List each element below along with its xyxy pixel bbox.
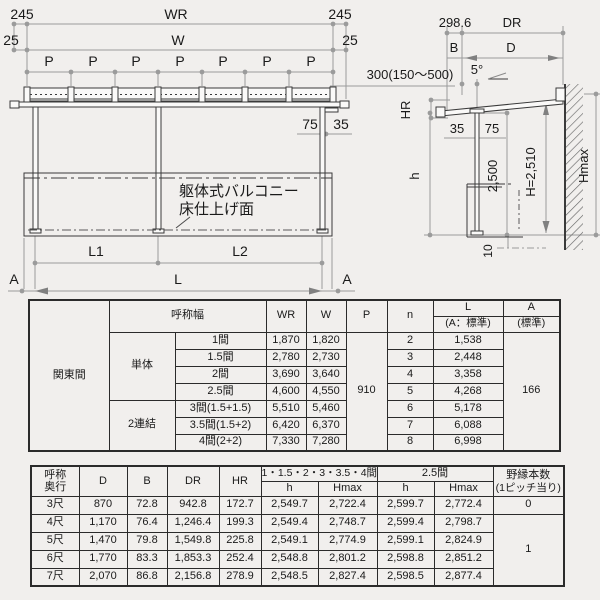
dim-label-b: B	[450, 40, 459, 55]
l-cell: 6,088	[433, 417, 503, 434]
post-bracket-right	[325, 108, 338, 112]
b-cell: 76.4	[127, 514, 167, 532]
n-header: n	[387, 300, 433, 332]
size-cell: 2.5間	[175, 383, 266, 400]
nobuchi-header-line1: 野縁本数	[494, 469, 564, 482]
n-cell: 5	[387, 383, 433, 400]
balcony-note-line2: 床仕上げ面	[179, 201, 254, 218]
h1-cell: 2,548.5	[261, 568, 318, 586]
hmax1-cell: 2,801.2	[318, 550, 377, 568]
post-center	[156, 107, 161, 232]
dim-label-slope: 5°	[471, 62, 483, 77]
post-right	[320, 107, 325, 232]
roof-front-cap	[436, 107, 445, 117]
w-cell: 2,730	[306, 349, 346, 366]
hr-cell: 172.7	[219, 496, 261, 514]
note-leader-line	[176, 217, 190, 228]
nobuchi-merged-cell: 1	[493, 514, 564, 586]
beam-cap-left	[10, 101, 19, 108]
dim-label-245-right: 245	[328, 6, 352, 22]
section-label-a-right: A	[342, 271, 352, 287]
post-side	[475, 112, 479, 233]
table-row: 5尺 1,470 79.8 1,549.8 225.8 2,549.1 2,77…	[31, 532, 564, 550]
hmax2-cell: 2,824.9	[434, 532, 493, 550]
nobuchi-header-line2: (1ピッチ当り)	[494, 482, 564, 494]
wall-bracket	[556, 88, 565, 101]
d-cell: 870	[79, 496, 127, 514]
h1-cell: 2,548.8	[261, 550, 318, 568]
depth-cell: 5尺	[31, 532, 79, 550]
hmax1-header: Hmax	[318, 481, 377, 496]
balcony-note-line1: 躯体式バルコニー	[179, 183, 299, 200]
wr-header: WR	[266, 300, 306, 332]
hmax2-header: Hmax	[434, 481, 493, 496]
table-row: 6尺 1,770 83.3 1,853.3 252.4 2,548.8 2,80…	[31, 550, 564, 568]
section-label-a-left: A	[9, 271, 19, 287]
dim-label-d: D	[506, 40, 515, 55]
wr-cell: 5,510	[266, 400, 306, 417]
dr-cell: 1,853.3	[167, 550, 219, 568]
dim-label-75-side: 75	[485, 121, 499, 136]
side-structure	[436, 84, 583, 250]
l-header: L	[433, 300, 503, 316]
h2-cell: 2,598.5	[377, 568, 434, 586]
front-view: 245 WR 245 25 W 25 P P P P P P P 75 35 躯…	[3, 6, 358, 295]
table-row: 単体 1間 1,870 1,820 910 2 1,538 166	[29, 332, 560, 349]
depth-cell: 7尺	[31, 568, 79, 586]
dim-label-2500: 2,500	[485, 160, 500, 193]
roof-mullion	[112, 87, 118, 104]
hmax1-cell: 2,827.4	[318, 568, 377, 586]
technical-drawing: 245 WR 245 25 W 25 P P P P P P P 75 35 躯…	[0, 0, 600, 298]
h2-cell: 2,599.4	[377, 514, 434, 532]
hmax2-cell: 2,851.2	[434, 550, 493, 568]
group-single-cell: 単体	[109, 332, 175, 400]
hmax2-cell: 2,877.4	[434, 568, 493, 586]
hmax2-cell: 2,798.7	[434, 514, 493, 532]
h2-cell: 2,599.7	[377, 496, 434, 514]
size-cell: 2間	[175, 366, 266, 383]
dim-label-w: W	[171, 32, 185, 48]
dim-label-pitch: P	[218, 53, 227, 69]
n-cell: 7	[387, 417, 433, 434]
size-cell: 1間	[175, 332, 266, 349]
size-cell: 3.5間(1.5+2)	[175, 417, 266, 434]
post-foot-side	[471, 231, 483, 235]
dim-label-298-6: 298.6	[439, 15, 472, 30]
wr-cell: 3,690	[266, 366, 306, 383]
h2-header: h	[377, 481, 434, 496]
a-value-cell: 166	[503, 332, 560, 451]
size-cell: 4間(2+2)	[175, 434, 266, 451]
dim-label-pitch: P	[131, 53, 140, 69]
hr-cell: 225.8	[219, 532, 261, 550]
l-cell: 2,448	[433, 349, 503, 366]
post-left	[33, 107, 38, 232]
w-cell: 6,370	[306, 417, 346, 434]
l-cell: 1,538	[433, 332, 503, 349]
wr-cell: 7,330	[266, 434, 306, 451]
w-cell: 1,820	[306, 332, 346, 349]
n-cell: 6	[387, 400, 433, 417]
h1-cell: 2,549.4	[261, 514, 318, 532]
post-bracket-side	[470, 109, 484, 113]
l-sub-header: (A：標準)	[433, 316, 503, 332]
dim-label-l1: L1	[88, 243, 104, 259]
p-value-cell: 910	[346, 332, 387, 451]
h2-cell: 2,599.1	[377, 532, 434, 550]
depth-header: 呼称 奥行	[31, 466, 79, 496]
b-cell: 79.8	[127, 532, 167, 550]
nobuchi-header: 野縁本数 (1ピッチ当り)	[493, 466, 564, 496]
a-header: A	[503, 300, 560, 316]
size-cell: 3間(1.5+1.5)	[175, 400, 266, 417]
dim-label-10: 10	[481, 244, 495, 258]
table-row: 4尺 1,170 76.4 1,246.4 199.3 2,549.4 2,74…	[31, 514, 564, 532]
roof-mullion	[286, 87, 292, 104]
l-cell: 3,358	[433, 366, 503, 383]
dim-label-l2: L2	[232, 243, 248, 259]
n-cell: 2	[387, 332, 433, 349]
dr-cell: 942.8	[167, 496, 219, 514]
dim-label-pitch: P	[44, 53, 53, 69]
dim-label-dr: DR	[503, 15, 522, 30]
dim-label-h: h	[407, 172, 422, 179]
dim-label-35: 35	[333, 116, 349, 132]
depth-cell: 6尺	[31, 550, 79, 568]
depth-table: 呼称 奥行 D B DR HR 1・1.5・2・3・3.5・4間 2.5間 野縁…	[30, 465, 565, 587]
hmax2-cell: 2,772.4	[434, 496, 493, 514]
size-cell: 1.5間	[175, 349, 266, 366]
hr-header: HR	[219, 466, 261, 496]
n-cell: 8	[387, 434, 433, 451]
depth-cell: 4尺	[31, 514, 79, 532]
dr-cell: 1,549.8	[167, 532, 219, 550]
roof-mullion	[242, 87, 248, 104]
w-cell: 5,460	[306, 400, 346, 417]
l-cell: 5,178	[433, 400, 503, 417]
dim-label-l: L	[174, 271, 182, 287]
beam-cap-right	[340, 101, 349, 108]
h1-cell: 2,549.7	[261, 496, 318, 514]
dim-label-h2510: H=2,510	[523, 147, 538, 197]
dim-label-35-side: 35	[450, 121, 464, 136]
dim-label-245-left: 245	[10, 6, 34, 22]
a-sub-header: (標準)	[503, 316, 560, 332]
wr-cell: 2,780	[266, 349, 306, 366]
d-cell: 1,470	[79, 532, 127, 550]
w-cell: 7,280	[306, 434, 346, 451]
group1-header: 1・1.5・2・3・3.5・4間	[261, 466, 377, 481]
dim-label-25-right: 25	[342, 32, 358, 48]
hmax1-cell: 2,722.4	[318, 496, 377, 514]
hr-cell: 199.3	[219, 514, 261, 532]
dim-label-pitch: P	[175, 53, 184, 69]
roof-mullion	[199, 87, 205, 104]
table-row: 7尺 2,070 86.8 2,156.8 278.9 2,548.5 2,82…	[31, 568, 564, 586]
l-cell: 4,268	[433, 383, 503, 400]
roof-mullion	[155, 87, 161, 104]
roof-end-cap-left	[24, 87, 30, 104]
group-double-cell: 2連結	[109, 400, 175, 451]
b-header: B	[127, 466, 167, 496]
l-cell: 6,998	[433, 434, 503, 451]
wr-cell: 6,420	[266, 417, 306, 434]
b-cell: 83.3	[127, 550, 167, 568]
depth-cell: 3尺	[31, 496, 79, 514]
wr-cell: 4,600	[266, 383, 306, 400]
h1-header: h	[261, 481, 318, 496]
w-header: W	[306, 300, 346, 332]
h2-cell: 2,598.8	[377, 550, 434, 568]
d-cell: 2,070	[79, 568, 127, 586]
dim-label-pitch: P	[306, 53, 315, 69]
dim-label-pitch: P	[88, 53, 97, 69]
depth-header-line1: 呼称	[32, 469, 79, 482]
nobuchi-cell: 0	[493, 496, 564, 514]
slope-marker	[488, 73, 508, 79]
h1-cell: 2,549.1	[261, 532, 318, 550]
wr-cell: 1,870	[266, 332, 306, 349]
dim-label-hr: HR	[398, 101, 413, 120]
dr-cell: 2,156.8	[167, 568, 219, 586]
group2-header: 2.5間	[377, 466, 493, 481]
dim-label-wr: WR	[164, 6, 187, 22]
n-cell: 4	[387, 366, 433, 383]
dr-cell: 1,246.4	[167, 514, 219, 532]
hr-cell: 278.9	[219, 568, 261, 586]
spec-table: 関東間 呼称幅 WR W P n L A (A：標準) (標準) 単体 1間 1…	[28, 299, 561, 452]
front-beam	[12, 102, 347, 107]
side-dimension-lines	[330, 26, 600, 248]
dim-label-pitch: P	[262, 53, 271, 69]
w-cell: 4,550	[306, 383, 346, 400]
d-cell: 1,770	[79, 550, 127, 568]
b-cell: 86.8	[127, 568, 167, 586]
hmax1-cell: 2,748.7	[318, 514, 377, 532]
side-view: 298.6 DR B D 300(150〜500) 5° HR 35 75 h …	[330, 15, 600, 258]
table-row: 2連結 3間(1.5+1.5) 5,510 5,460 6 5,178	[29, 400, 560, 417]
w-cell: 3,640	[306, 366, 346, 383]
n-cell: 3	[387, 349, 433, 366]
p-header: P	[346, 300, 387, 332]
d-header: D	[79, 466, 127, 496]
roof-end-cap-right	[330, 87, 336, 104]
dim-label-25-left: 25	[3, 32, 19, 48]
region-cell: 関東間	[29, 300, 109, 451]
dim-label-75: 75	[302, 116, 318, 132]
table-row: 3尺 870 72.8 942.8 172.7 2,549.7 2,722.4 …	[31, 496, 564, 514]
dim-label-hmax: Hmax	[576, 149, 591, 183]
width-header: 呼称幅	[109, 300, 266, 332]
hmax1-cell: 2,774.9	[318, 532, 377, 550]
b-cell: 72.8	[127, 496, 167, 514]
depth-header-line2: 奥行	[32, 481, 79, 494]
hr-cell: 252.4	[219, 550, 261, 568]
dr-header: DR	[167, 466, 219, 496]
roof-mullion	[68, 87, 74, 104]
d-cell: 1,170	[79, 514, 127, 532]
dim-label-bracket: 300(150〜500)	[367, 67, 454, 82]
